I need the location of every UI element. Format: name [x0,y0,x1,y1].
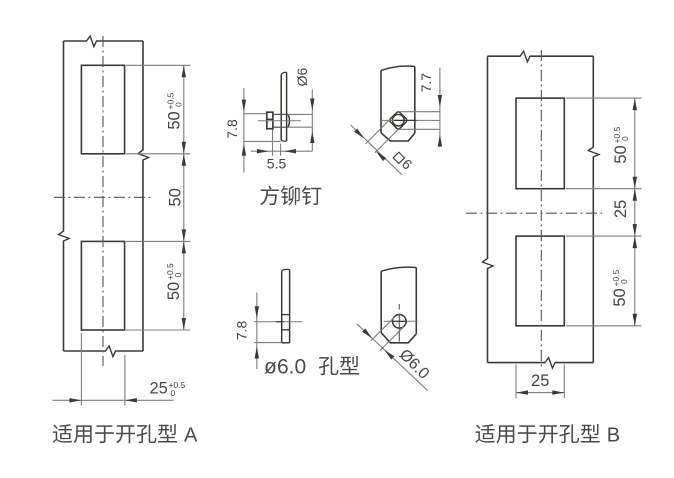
svg-text:25: 25 [612,200,630,218]
svg-text:6.0: 6.0 [277,356,306,379]
svg-text:0: 0 [620,136,630,141]
svg-text:0: 0 [619,279,629,284]
svg-text:50: 50 [166,111,184,129]
svg-text:A: A [184,425,198,447]
svg-text:50: 50 [612,145,630,163]
svg-text:7.8: 7.8 [224,119,240,139]
svg-text:5.5: 5.5 [267,156,287,172]
svg-text:ø: ø [264,356,277,379]
svg-text:50: 50 [165,282,183,300]
svg-text:50: 50 [167,188,185,206]
svg-text:25: 25 [531,372,549,390]
svg-text:7.7: 7.7 [418,73,434,93]
svg-text:B: B [607,425,620,447]
svg-text:0: 0 [174,102,184,107]
svg-text:25: 25 [150,380,168,398]
svg-text:7.8: 7.8 [234,321,250,341]
svg-text:Ø6: Ø6 [294,67,310,86]
svg-text:0: 0 [171,388,176,398]
svg-text:50: 50 [611,288,629,306]
svg-text:0: 0 [173,273,183,278]
